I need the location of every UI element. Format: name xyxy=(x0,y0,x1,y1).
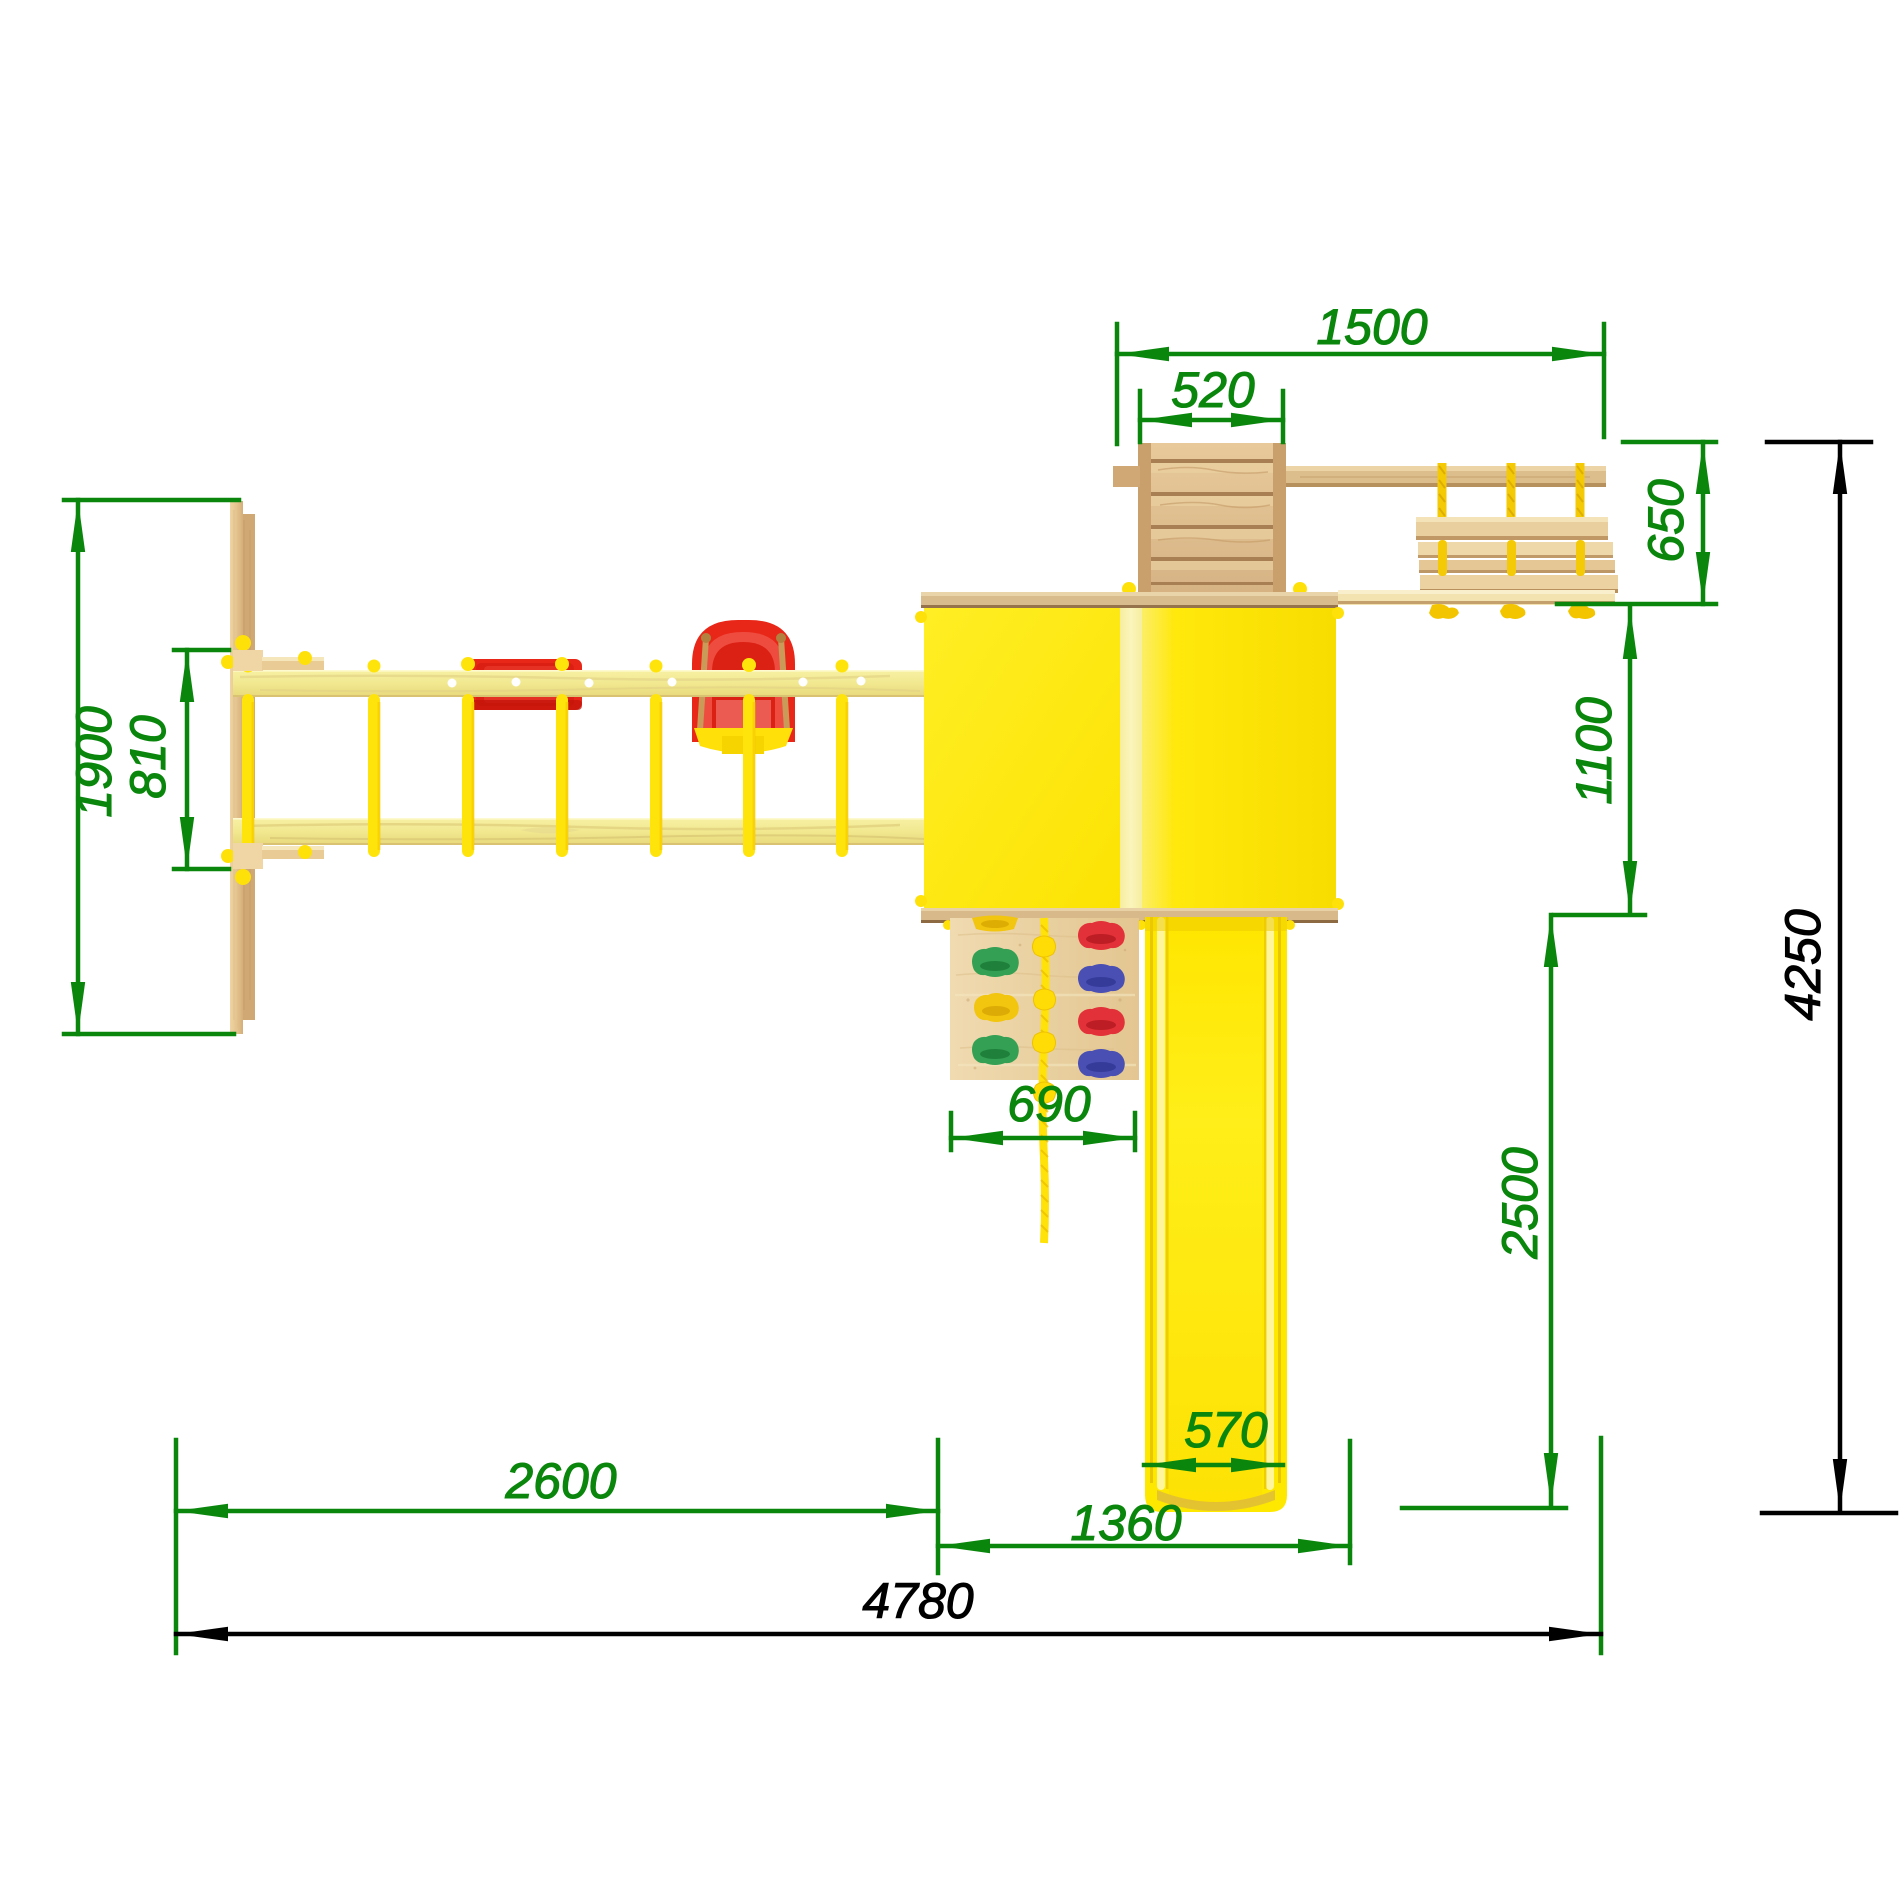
svg-text:1100: 1100 xyxy=(1566,697,1622,805)
svg-text:4780: 4780 xyxy=(862,1573,973,1629)
svg-text:2500: 2500 xyxy=(1492,1147,1548,1259)
svg-text:520: 520 xyxy=(1171,362,1255,418)
svg-text:650: 650 xyxy=(1638,479,1694,563)
svg-text:2600: 2600 xyxy=(504,1453,616,1509)
svg-text:570: 570 xyxy=(1184,1402,1268,1458)
svg-text:810: 810 xyxy=(120,715,176,799)
svg-text:1900: 1900 xyxy=(66,706,122,817)
svg-text:4250: 4250 xyxy=(1775,909,1831,1020)
svg-text:1500: 1500 xyxy=(1316,299,1427,355)
svg-text:690: 690 xyxy=(1007,1076,1091,1132)
svg-text:1360: 1360 xyxy=(1070,1495,1181,1551)
